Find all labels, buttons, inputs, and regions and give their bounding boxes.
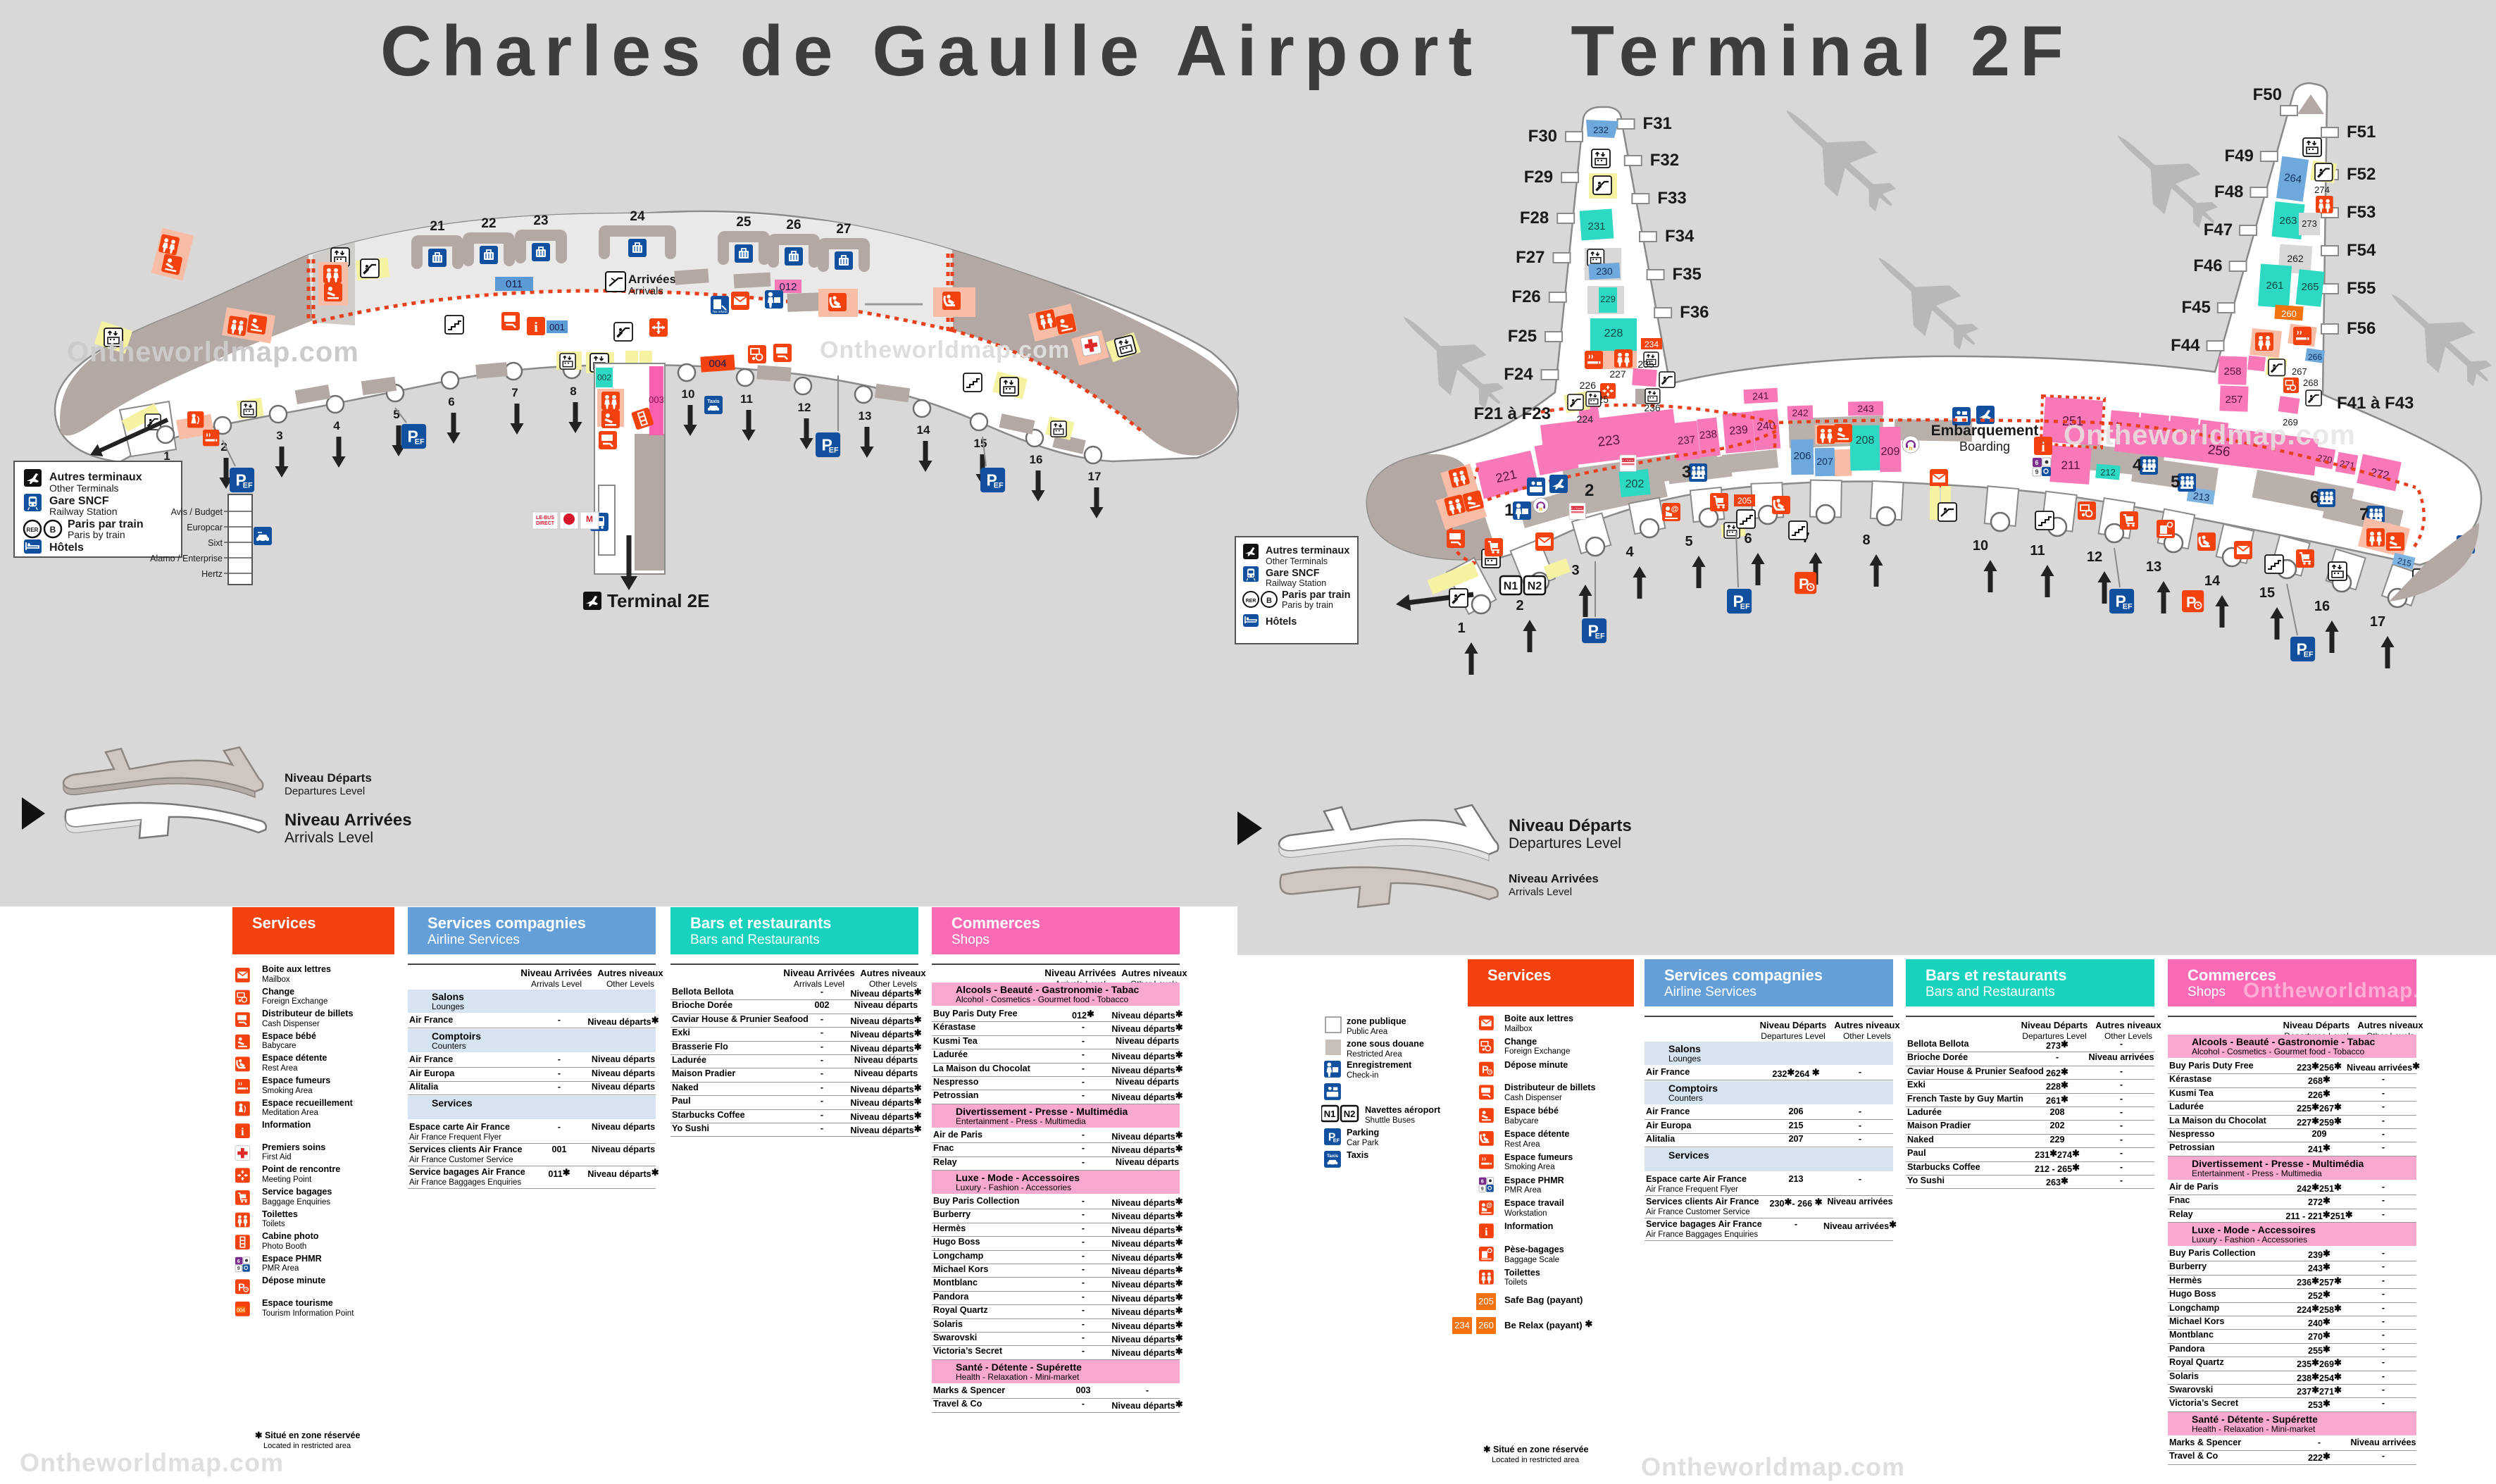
svg-text:Hôtels: Hôtels — [49, 542, 84, 554]
svg-text:17: 17 — [2370, 614, 2385, 630]
svg-text:15: 15 — [974, 437, 987, 450]
svg-text:N1: N1 — [1504, 580, 1518, 592]
svg-text:Avis / Budget: Avis / Budget — [171, 507, 223, 517]
svg-text:Niveau Départs: Niveau Départs — [285, 771, 372, 785]
svg-text:F34: F34 — [1665, 227, 1695, 246]
svg-text:227: 227 — [1609, 368, 1626, 380]
svg-text:004: 004 — [709, 358, 726, 370]
svg-text:3: 3 — [276, 429, 282, 442]
svg-text:F33: F33 — [1657, 189, 1686, 208]
svg-text:202: 202 — [1625, 478, 1645, 490]
svg-text:257: 257 — [2225, 394, 2242, 406]
svg-text:268: 268 — [2303, 378, 2319, 388]
svg-text:F31: F31 — [1643, 114, 1672, 133]
svg-text:1: 1 — [1457, 621, 1465, 636]
svg-text:F45: F45 — [2181, 298, 2210, 317]
svg-text:Niveau Arrivées: Niveau Arrivées — [285, 811, 412, 830]
svg-text:212: 212 — [2100, 467, 2116, 478]
svg-text:261: 261 — [2266, 280, 2283, 292]
svg-text:Paris par train: Paris par train — [1282, 590, 1351, 601]
svg-text:Niveau Arrivées: Niveau Arrivées — [1509, 872, 1599, 885]
svg-text:12: 12 — [2087, 549, 2102, 565]
svg-text:4: 4 — [333, 419, 340, 432]
svg-text:11: 11 — [2030, 543, 2045, 559]
svg-text:Alamo / Enterprise: Alamo / Enterprise — [150, 554, 223, 563]
svg-text:243: 243 — [1857, 403, 1874, 414]
svg-text:LE-BUS: LE-BUS — [536, 516, 554, 520]
svg-text:F35: F35 — [1673, 265, 1702, 284]
svg-text:Terminal 2E: Terminal 2E — [607, 590, 709, 611]
svg-text:F55: F55 — [2347, 279, 2376, 298]
svg-text:274: 274 — [2314, 185, 2330, 195]
svg-text:266: 266 — [2308, 352, 2322, 362]
svg-text:205: 205 — [1737, 496, 1752, 506]
svg-text:14: 14 — [917, 423, 930, 437]
svg-text:DIRECT: DIRECT — [536, 521, 555, 526]
svg-text:2: 2 — [1516, 598, 1523, 613]
svg-text:14: 14 — [2204, 573, 2221, 589]
svg-text:F53: F53 — [2347, 203, 2376, 222]
svg-text:2: 2 — [1585, 481, 1594, 500]
svg-text:Embarquement: Embarquement — [1931, 423, 2039, 439]
svg-text:Paris by train: Paris by train — [68, 529, 125, 540]
svg-text:262: 262 — [2287, 253, 2304, 264]
svg-text:F27: F27 — [1516, 248, 1545, 267]
svg-text:267: 267 — [2292, 366, 2307, 377]
svg-text:3: 3 — [1682, 463, 1691, 482]
svg-text:Departures Level: Departures Level — [1509, 835, 1621, 852]
svg-text:Arrivals: Arrivals — [628, 285, 663, 297]
svg-text:6: 6 — [448, 395, 454, 409]
svg-text:211: 211 — [2061, 459, 2080, 472]
svg-text:232: 232 — [1593, 125, 1609, 135]
svg-text:Hôtels: Hôtels — [1266, 616, 1297, 628]
svg-text:5: 5 — [1685, 534, 1692, 549]
svg-text:24: 24 — [630, 209, 645, 224]
svg-text:241: 241 — [1752, 389, 1769, 401]
svg-text:209: 209 — [1881, 446, 1900, 458]
svg-text:206: 206 — [1793, 450, 1811, 462]
svg-text:B: B — [50, 525, 56, 535]
svg-text:F54: F54 — [2347, 241, 2376, 260]
svg-text:001: 001 — [549, 322, 565, 332]
svg-text:15: 15 — [2259, 585, 2275, 601]
svg-text:N1: N1 — [1324, 1109, 1336, 1119]
svg-text:RER: RER — [1246, 599, 1256, 604]
svg-text:258: 258 — [2223, 366, 2241, 378]
svg-text:207: 207 — [1816, 456, 1833, 467]
svg-text:7: 7 — [511, 386, 518, 399]
svg-text:F24: F24 — [1504, 365, 1533, 384]
svg-text:3: 3 — [1571, 563, 1579, 578]
svg-text:12: 12 — [798, 401, 811, 414]
svg-text:208: 208 — [1856, 435, 1875, 447]
svg-text:011: 011 — [506, 278, 523, 290]
svg-text:004: 004 — [237, 1307, 245, 1313]
svg-text:11: 11 — [740, 392, 753, 406]
svg-text:Other Terminals: Other Terminals — [1266, 556, 1328, 566]
svg-text:260: 260 — [2281, 308, 2297, 319]
svg-text:8: 8 — [1862, 532, 1870, 548]
svg-text:230: 230 — [1596, 266, 1613, 277]
svg-text:F25: F25 — [1508, 327, 1537, 346]
svg-text:242: 242 — [1792, 407, 1809, 418]
svg-text:F28: F28 — [1520, 208, 1549, 227]
svg-text:F46: F46 — [2193, 256, 2222, 275]
svg-text:23: 23 — [533, 213, 548, 228]
svg-text:26: 26 — [786, 218, 801, 232]
svg-text:F29: F29 — [1524, 168, 1553, 187]
svg-text:Boarding: Boarding — [1959, 439, 2010, 454]
svg-text:228: 228 — [1604, 328, 1623, 339]
svg-text:22: 22 — [481, 216, 496, 231]
svg-text:F52: F52 — [2347, 165, 2376, 184]
svg-text:003: 003 — [649, 394, 664, 405]
svg-text:F51: F51 — [2347, 123, 2376, 142]
svg-text:Hertz: Hertz — [201, 569, 223, 579]
svg-text:Arrivals Level: Arrivals Level — [285, 830, 373, 846]
svg-text:F50: F50 — [2253, 85, 2282, 104]
svg-text:F36: F36 — [1680, 303, 1709, 322]
svg-text:263: 263 — [2279, 215, 2297, 227]
svg-text:Departures Level: Departures Level — [285, 785, 365, 797]
svg-text:229: 229 — [1600, 294, 1616, 304]
svg-text:273: 273 — [2302, 218, 2317, 229]
svg-text:RER: RER — [27, 527, 39, 533]
svg-text:16: 16 — [1030, 453, 1043, 466]
svg-text:226: 226 — [1580, 380, 1597, 391]
svg-text:F56: F56 — [2347, 319, 2376, 338]
svg-text:Europcar: Europcar — [187, 523, 223, 532]
svg-text:223: 223 — [1597, 432, 1621, 450]
svg-text:Sixt: Sixt — [208, 538, 223, 548]
svg-text:4: 4 — [2133, 456, 2142, 475]
svg-text:234: 234 — [1645, 339, 1659, 349]
svg-text:27: 27 — [836, 222, 851, 237]
svg-text:10: 10 — [1973, 538, 1988, 554]
svg-text:16: 16 — [2314, 599, 2330, 614]
svg-text:F32: F32 — [1650, 151, 1679, 170]
svg-text:M: M — [586, 514, 593, 524]
svg-text:213: 213 — [2192, 490, 2211, 504]
svg-text:4: 4 — [1625, 544, 1634, 560]
svg-text:002: 002 — [597, 373, 611, 382]
svg-text:Niveau Départs: Niveau Départs — [1509, 816, 1632, 835]
svg-text:17: 17 — [1088, 470, 1102, 483]
svg-text:231: 231 — [1587, 220, 1605, 232]
svg-text:F47: F47 — [2204, 220, 2233, 239]
svg-text:21: 21 — [430, 219, 445, 234]
svg-text:1: 1 — [1504, 501, 1514, 520]
svg-text:F48: F48 — [2214, 182, 2243, 201]
svg-text:6: 6 — [2310, 488, 2319, 507]
svg-text:N2: N2 — [1528, 580, 1542, 592]
svg-text:Other Terminals: Other Terminals — [49, 482, 119, 494]
svg-text:5: 5 — [2171, 473, 2180, 492]
svg-text:237: 237 — [1677, 434, 1696, 448]
svg-text:Paris by train: Paris by train — [1282, 600, 1333, 610]
svg-text:238: 238 — [1699, 428, 1718, 442]
svg-text:8: 8 — [570, 385, 576, 398]
svg-text:13: 13 — [859, 409, 872, 423]
svg-text:B: B — [1266, 597, 1272, 605]
svg-text:264: 264 — [2283, 171, 2302, 185]
svg-text:F30: F30 — [1528, 127, 1557, 146]
svg-text:13: 13 — [2146, 559, 2161, 575]
svg-text:10: 10 — [682, 387, 695, 401]
svg-text:235: 235 — [1637, 358, 1654, 370]
svg-text:Autres terminaux: Autres terminaux — [49, 471, 142, 483]
svg-text:Arrivals Level: Arrivals Level — [1509, 886, 1572, 898]
svg-text:265: 265 — [2301, 281, 2319, 293]
svg-text:Railway Station: Railway Station — [49, 506, 118, 517]
svg-text:F44: F44 — [2171, 336, 2200, 355]
svg-text:F41 à F43: F41 à F43 — [2337, 394, 2414, 413]
svg-text:Gare SNCF: Gare SNCF — [1266, 568, 1320, 579]
svg-text:239: 239 — [1729, 424, 1749, 437]
svg-text:Autres terminaux: Autres terminaux — [1266, 545, 1349, 556]
svg-text:Railway Station: Railway Station — [1266, 578, 1326, 588]
svg-text:F49: F49 — [2225, 146, 2254, 166]
svg-text:F26: F26 — [1511, 287, 1540, 306]
svg-text:N2: N2 — [1344, 1109, 1356, 1119]
svg-text:Arrivées: Arrivées — [628, 273, 676, 286]
svg-text:224: 224 — [1577, 413, 1594, 425]
svg-text:25: 25 — [736, 215, 751, 230]
